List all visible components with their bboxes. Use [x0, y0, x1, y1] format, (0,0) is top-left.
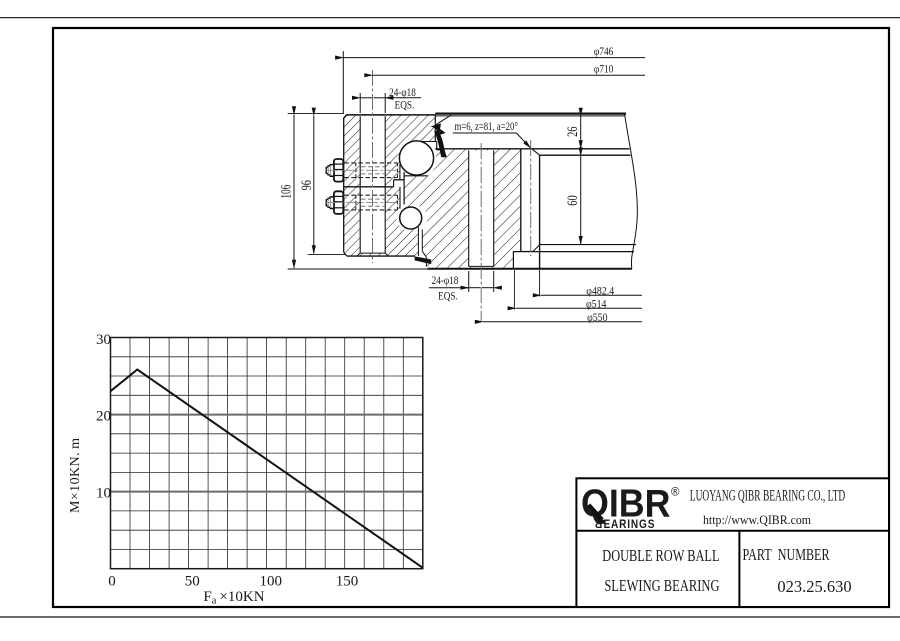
svg-text:24-φ18: 24-φ18 — [432, 275, 459, 287]
svg-text:SLEWING BEARING: SLEWING BEARING — [604, 577, 720, 595]
svg-text:60: 60 — [564, 195, 580, 205]
svg-text:50: 50 — [185, 574, 200, 590]
svg-text:φ482.4: φ482.4 — [586, 285, 614, 298]
svg-text:M×10KN. m: M×10KN. m — [68, 438, 83, 513]
svg-text:26: 26 — [564, 126, 580, 136]
svg-text:φ550: φ550 — [587, 311, 608, 324]
svg-text:100: 100 — [259, 574, 282, 590]
svg-text:m=6, z=81, a=20°: m=6, z=81, a=20° — [455, 121, 518, 133]
svg-text:PART NUMBER: PART NUMBER — [743, 546, 830, 564]
svg-text:φ746: φ746 — [594, 45, 614, 58]
svg-text:LUOYANG QIBR BEARING CO., LTD: LUOYANG QIBR BEARING CO., LTD — [690, 486, 846, 504]
svg-text:106: 106 — [277, 185, 294, 199]
svg-text:http://www.QIBR.com: http://www.QIBR.com — [703, 513, 812, 527]
svg-text:®: ® — [671, 487, 680, 499]
svg-text:20: 20 — [96, 408, 111, 424]
svg-text:EARINGS: EARINGS — [604, 518, 656, 531]
svg-text:φ710: φ710 — [594, 62, 613, 75]
svg-text:023.25.630: 023.25.630 — [777, 577, 851, 596]
svg-text:0: 0 — [108, 574, 116, 590]
svg-text:EQS.: EQS. — [438, 290, 458, 302]
svg-text:30: 30 — [96, 332, 111, 348]
svg-text:150: 150 — [336, 574, 359, 590]
svg-text:DOUBLE ROW BALL: DOUBLE ROW BALL — [602, 547, 719, 565]
svg-text:EQS.: EQS. — [395, 100, 415, 112]
svg-text:96: 96 — [298, 180, 314, 190]
svg-text:24-φ18: 24-φ18 — [389, 87, 416, 99]
svg-text:10: 10 — [96, 485, 111, 501]
svg-text:φ514: φ514 — [586, 298, 607, 311]
